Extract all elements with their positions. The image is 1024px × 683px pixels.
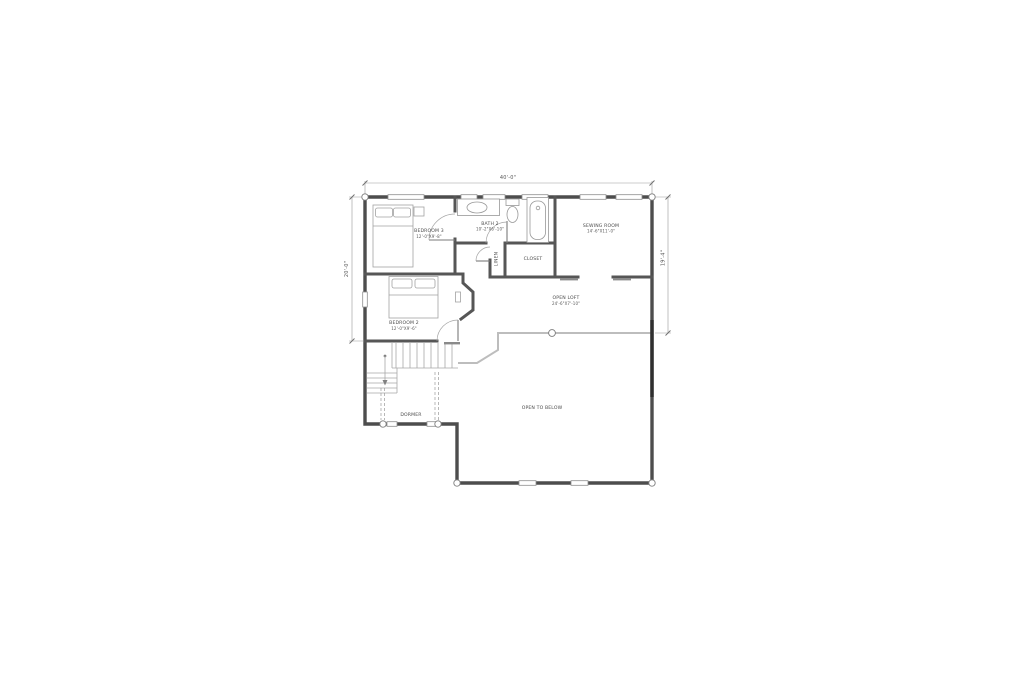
- post: [454, 480, 460, 486]
- toilet-bowl: [507, 207, 518, 223]
- floor-plan-drawing: 40'-0" 20'-0" 19'-4": [0, 0, 1024, 683]
- room-size-open-loft: 24'-6"X7'-10": [552, 301, 580, 306]
- bedroom2-furniture: [389, 277, 461, 319]
- pillow: [392, 279, 412, 288]
- room-label-dormer: DORMER: [400, 412, 422, 418]
- room-size-bedroom3: 12'-0"X9'-8": [416, 234, 441, 239]
- post: [435, 421, 441, 427]
- window: [519, 481, 536, 486]
- window: [363, 292, 368, 307]
- post: [649, 480, 655, 486]
- railing-post: [549, 330, 556, 337]
- room-label-open-to-below: OPEN TO BELOW: [522, 405, 563, 411]
- staircase: [367, 343, 458, 393]
- wall-end-trim: [444, 342, 460, 344]
- window: [388, 195, 424, 200]
- dimension-label-left: 20'-0": [344, 261, 350, 277]
- window: [580, 195, 606, 200]
- dimension-label-top: 40'-0": [500, 175, 516, 181]
- room-size-bath2: 10'-2"X6'-10": [476, 227, 504, 232]
- window: [616, 195, 642, 200]
- room-size-sewing-room: 14'-6"X11'-0": [587, 229, 615, 234]
- sink: [467, 202, 487, 213]
- wall-shelf: [456, 292, 461, 302]
- window: [387, 422, 397, 427]
- bathtub-drain: [536, 206, 540, 210]
- bedroom2-door: [437, 320, 458, 341]
- room-label-linen: LINEN: [494, 252, 500, 266]
- cased-opening-trim: [560, 278, 578, 280]
- pillow: [376, 208, 393, 217]
- window: [571, 481, 588, 486]
- post: [649, 194, 655, 200]
- post: [380, 421, 386, 427]
- linen-door: [476, 247, 490, 261]
- nightstand: [414, 207, 424, 216]
- cased-opening-trim: [613, 278, 631, 280]
- loft-railing: [458, 330, 652, 363]
- pillow: [394, 208, 411, 217]
- bath-fixtures: [458, 198, 549, 243]
- floor-plan-canvas: 40'-0" 20'-0" 19'-4": [0, 0, 1024, 683]
- dimension-label-right: 19'-4": [661, 250, 667, 266]
- pillow: [415, 279, 435, 288]
- post: [362, 194, 368, 200]
- room-size-bedroom2: 12'-0"X9'-6": [391, 326, 416, 331]
- toilet-tank: [506, 199, 519, 206]
- room-label-closet: CLOSET: [524, 256, 543, 262]
